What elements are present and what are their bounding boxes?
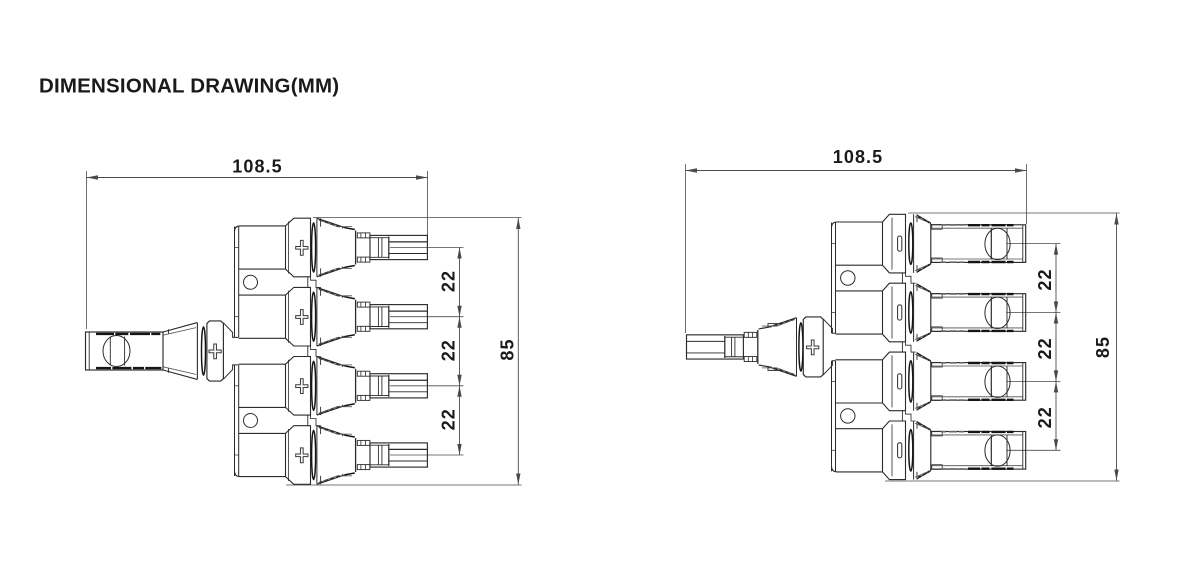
svg-text:85: 85: [1093, 336, 1113, 358]
svg-text:22: 22: [1035, 268, 1055, 290]
svg-text:DIMENSIONAL DRAWING(MM): DIMENSIONAL DRAWING(MM): [39, 75, 339, 98]
svg-text:22: 22: [1035, 406, 1055, 428]
svg-text:22: 22: [438, 408, 458, 430]
svg-text:108.5: 108.5: [232, 157, 283, 177]
svg-text:22: 22: [438, 270, 458, 292]
svg-text:85: 85: [498, 338, 518, 360]
svg-text:108.5: 108.5: [833, 147, 884, 167]
svg-text:22: 22: [438, 339, 458, 361]
svg-text:22: 22: [1035, 337, 1055, 359]
